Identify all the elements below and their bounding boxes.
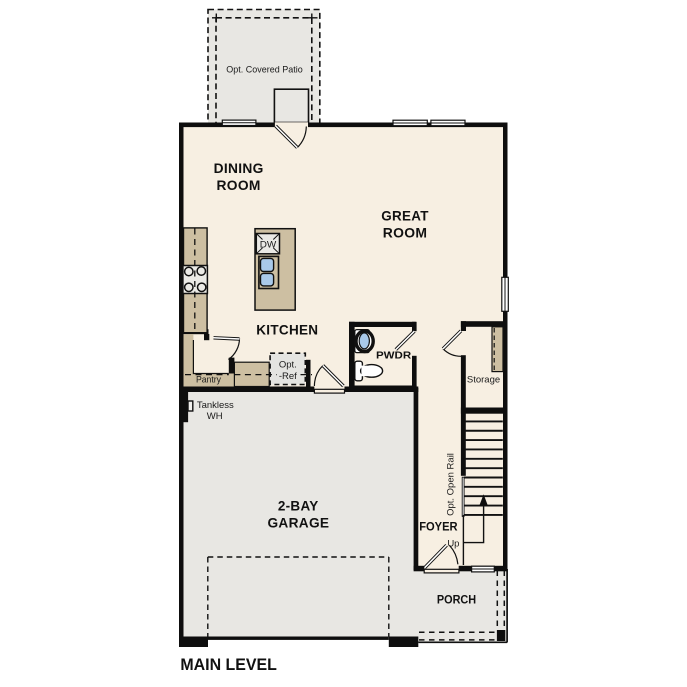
svg-text:-Ref: -Ref xyxy=(279,371,297,382)
svg-text:GARAGE: GARAGE xyxy=(268,515,330,531)
svg-text:Pantry: Pantry xyxy=(196,374,221,385)
svg-text:2-BAY: 2-BAY xyxy=(278,498,319,514)
svg-text:PORCH: PORCH xyxy=(437,595,476,607)
svg-text:Opt. Open Rail: Opt. Open Rail xyxy=(446,453,457,516)
svg-text:Opt.: Opt. xyxy=(279,360,297,371)
svg-text:GREAT: GREAT xyxy=(381,207,429,223)
svg-text:DW: DW xyxy=(260,239,277,250)
svg-text:Up: Up xyxy=(447,539,459,550)
svg-text:FOYER: FOYER xyxy=(419,520,458,534)
svg-text:MAIN LEVEL: MAIN LEVEL xyxy=(180,655,277,674)
svg-text:KITCHEN: KITCHEN xyxy=(256,322,318,338)
svg-text:DINING: DINING xyxy=(214,160,264,176)
svg-text:Storage: Storage xyxy=(467,375,500,386)
svg-text:WH: WH xyxy=(207,411,223,422)
svg-text:Tankless: Tankless xyxy=(197,400,234,411)
svg-text:PWDR: PWDR xyxy=(376,350,412,361)
svg-text:Opt. Covered Patio: Opt. Covered Patio xyxy=(226,65,302,76)
svg-text:ROOM: ROOM xyxy=(217,177,261,193)
svg-text:ROOM: ROOM xyxy=(383,224,428,240)
